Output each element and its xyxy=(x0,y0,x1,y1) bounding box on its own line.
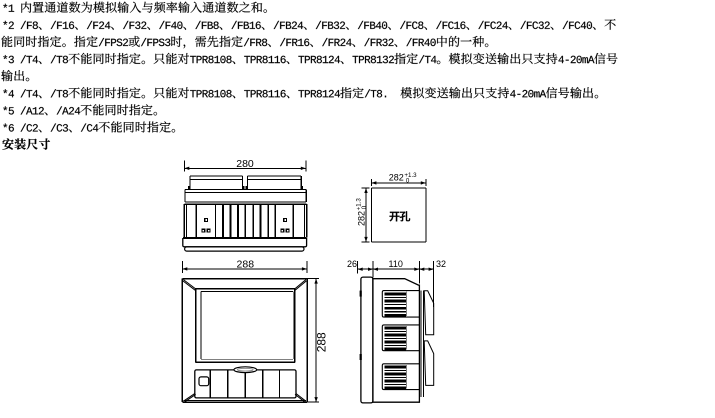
svg-text:288: 288 xyxy=(314,332,328,352)
svg-text:0: 0 xyxy=(406,177,410,184)
svg-text:32: 32 xyxy=(436,259,446,269)
svg-text:26: 26 xyxy=(347,259,357,269)
svg-text:280: 280 xyxy=(236,158,254,170)
svg-text:282: 282 xyxy=(389,172,404,182)
svg-text:110: 110 xyxy=(389,259,403,269)
svg-text:0: 0 xyxy=(361,205,368,209)
svg-text:282: 282 xyxy=(356,211,366,226)
svg-text:288: 288 xyxy=(237,258,255,270)
